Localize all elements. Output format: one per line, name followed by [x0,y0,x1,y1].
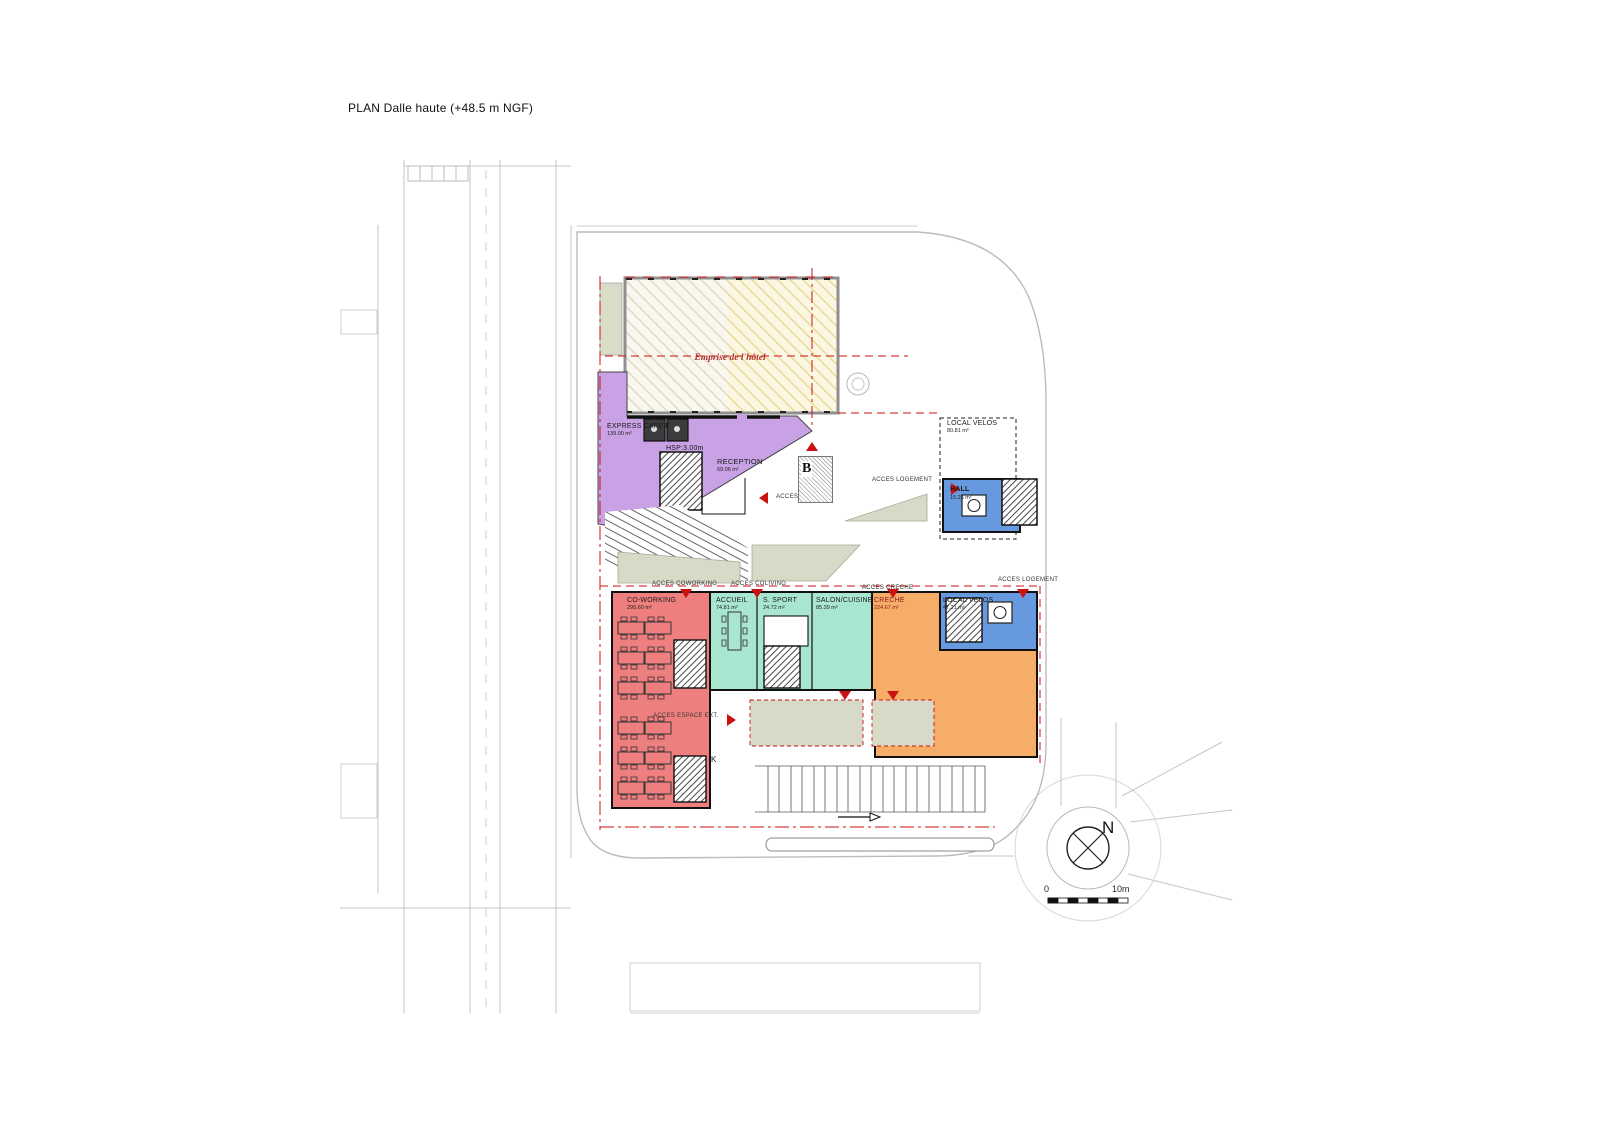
access-arrow-courtyard-1 [839,691,851,700]
plaza-shape-2 [752,545,860,581]
room-area-express-cafe: 139.00 m² [607,432,632,438]
room-area-local-velos-lower: 47.21 m² [943,606,965,612]
scale-start-label: 0 [1044,884,1049,894]
hotel-footprint-label: Emprise de l'hôtel [655,353,805,363]
room-area-creche: 224.67 m² [874,606,899,612]
room-area-sport: 24.72 m² [763,606,785,612]
access-arrow-hotel [759,492,768,504]
ramp-circle [847,373,869,395]
access-arrow-up [806,442,818,451]
floor-plan-canvas: PLAN Dalle haute (+48.5 m NGF) Emprise d… [0,0,1600,1131]
room-label-salon-cuisine: SALON/CUISINE [816,597,873,605]
room-label-local-velos-lower: LOCAL VELOS [943,597,993,605]
room-label-sport: S. SPORT [763,597,797,605]
courtyard-1 [750,700,863,746]
hotel-footprint-yellow [728,280,836,411]
platform [766,838,994,851]
room-area-hall: 15.25 m² [950,496,972,502]
ramp-circle-inner [852,378,864,390]
room-label-local-velos-upper: LOCAL VELOS [947,420,997,428]
scale-bar [1048,898,1128,903]
access-label-logement-lower: ACCES LOGEMENT [998,577,1058,583]
scale-end-label: 10m [1112,884,1130,894]
stair-core-coworking-2 [674,756,706,802]
terrace-strip [600,283,622,355]
page-title: PLAN Dalle haute (+48.5 m NGF) [348,101,533,115]
room-label-hall: HALL [950,486,969,494]
room-label-coworking: CO-WORKING [627,597,676,605]
elevator-icon [988,602,1012,623]
room-label-creche: CRECHE [874,597,905,605]
stair-core-coworking-1 [674,640,706,688]
north-label: N [1102,818,1114,838]
door-gap [737,414,747,420]
salon-inner-room [764,616,808,646]
access-label-espace-ext: ACCES ESPACE EXT. [653,713,719,719]
courtyard-2 [872,700,934,746]
room-label-reception: RECEPTION [717,458,763,466]
plan-drawing [0,0,1600,1131]
stair-core-sport [764,646,800,688]
hsp-note: HSP:3.00m [666,445,704,453]
room-area-reception: 69.06 m² [717,468,739,474]
plaza-triangle-1 [845,494,927,521]
room-area-coworking: 295.60 m² [627,606,652,612]
access-label-coliving: ACCES COLIVING [731,581,786,587]
wc-icon [674,426,680,432]
access-label-coworking: ACCES COWORKING [652,581,717,587]
parking-stalls [755,766,985,812]
room-label-express-cafe: EXPRESS CAFE E [607,423,670,431]
traffic-arrow [838,813,880,821]
drawing-stamp: B [798,456,833,503]
room-area-accueil: 74.81 m² [716,606,738,612]
access-label-creche: ACCES CRECHE [862,585,913,591]
access-label-logement-upper: ACCES LOGEMENT [872,477,932,483]
access-arrow-espace-ext [727,714,736,726]
k-annotation: K [711,755,716,764]
room-label-accueil: ACCUEIL [716,597,748,605]
room-area-salon-cuisine: 85.39 m² [816,606,838,612]
room-area-local-velos-upper: 80.81 m² [947,429,969,435]
stair-core-hall [1002,479,1037,525]
stair-core-hotel [660,452,702,510]
stamp-letter: B [801,461,812,477]
